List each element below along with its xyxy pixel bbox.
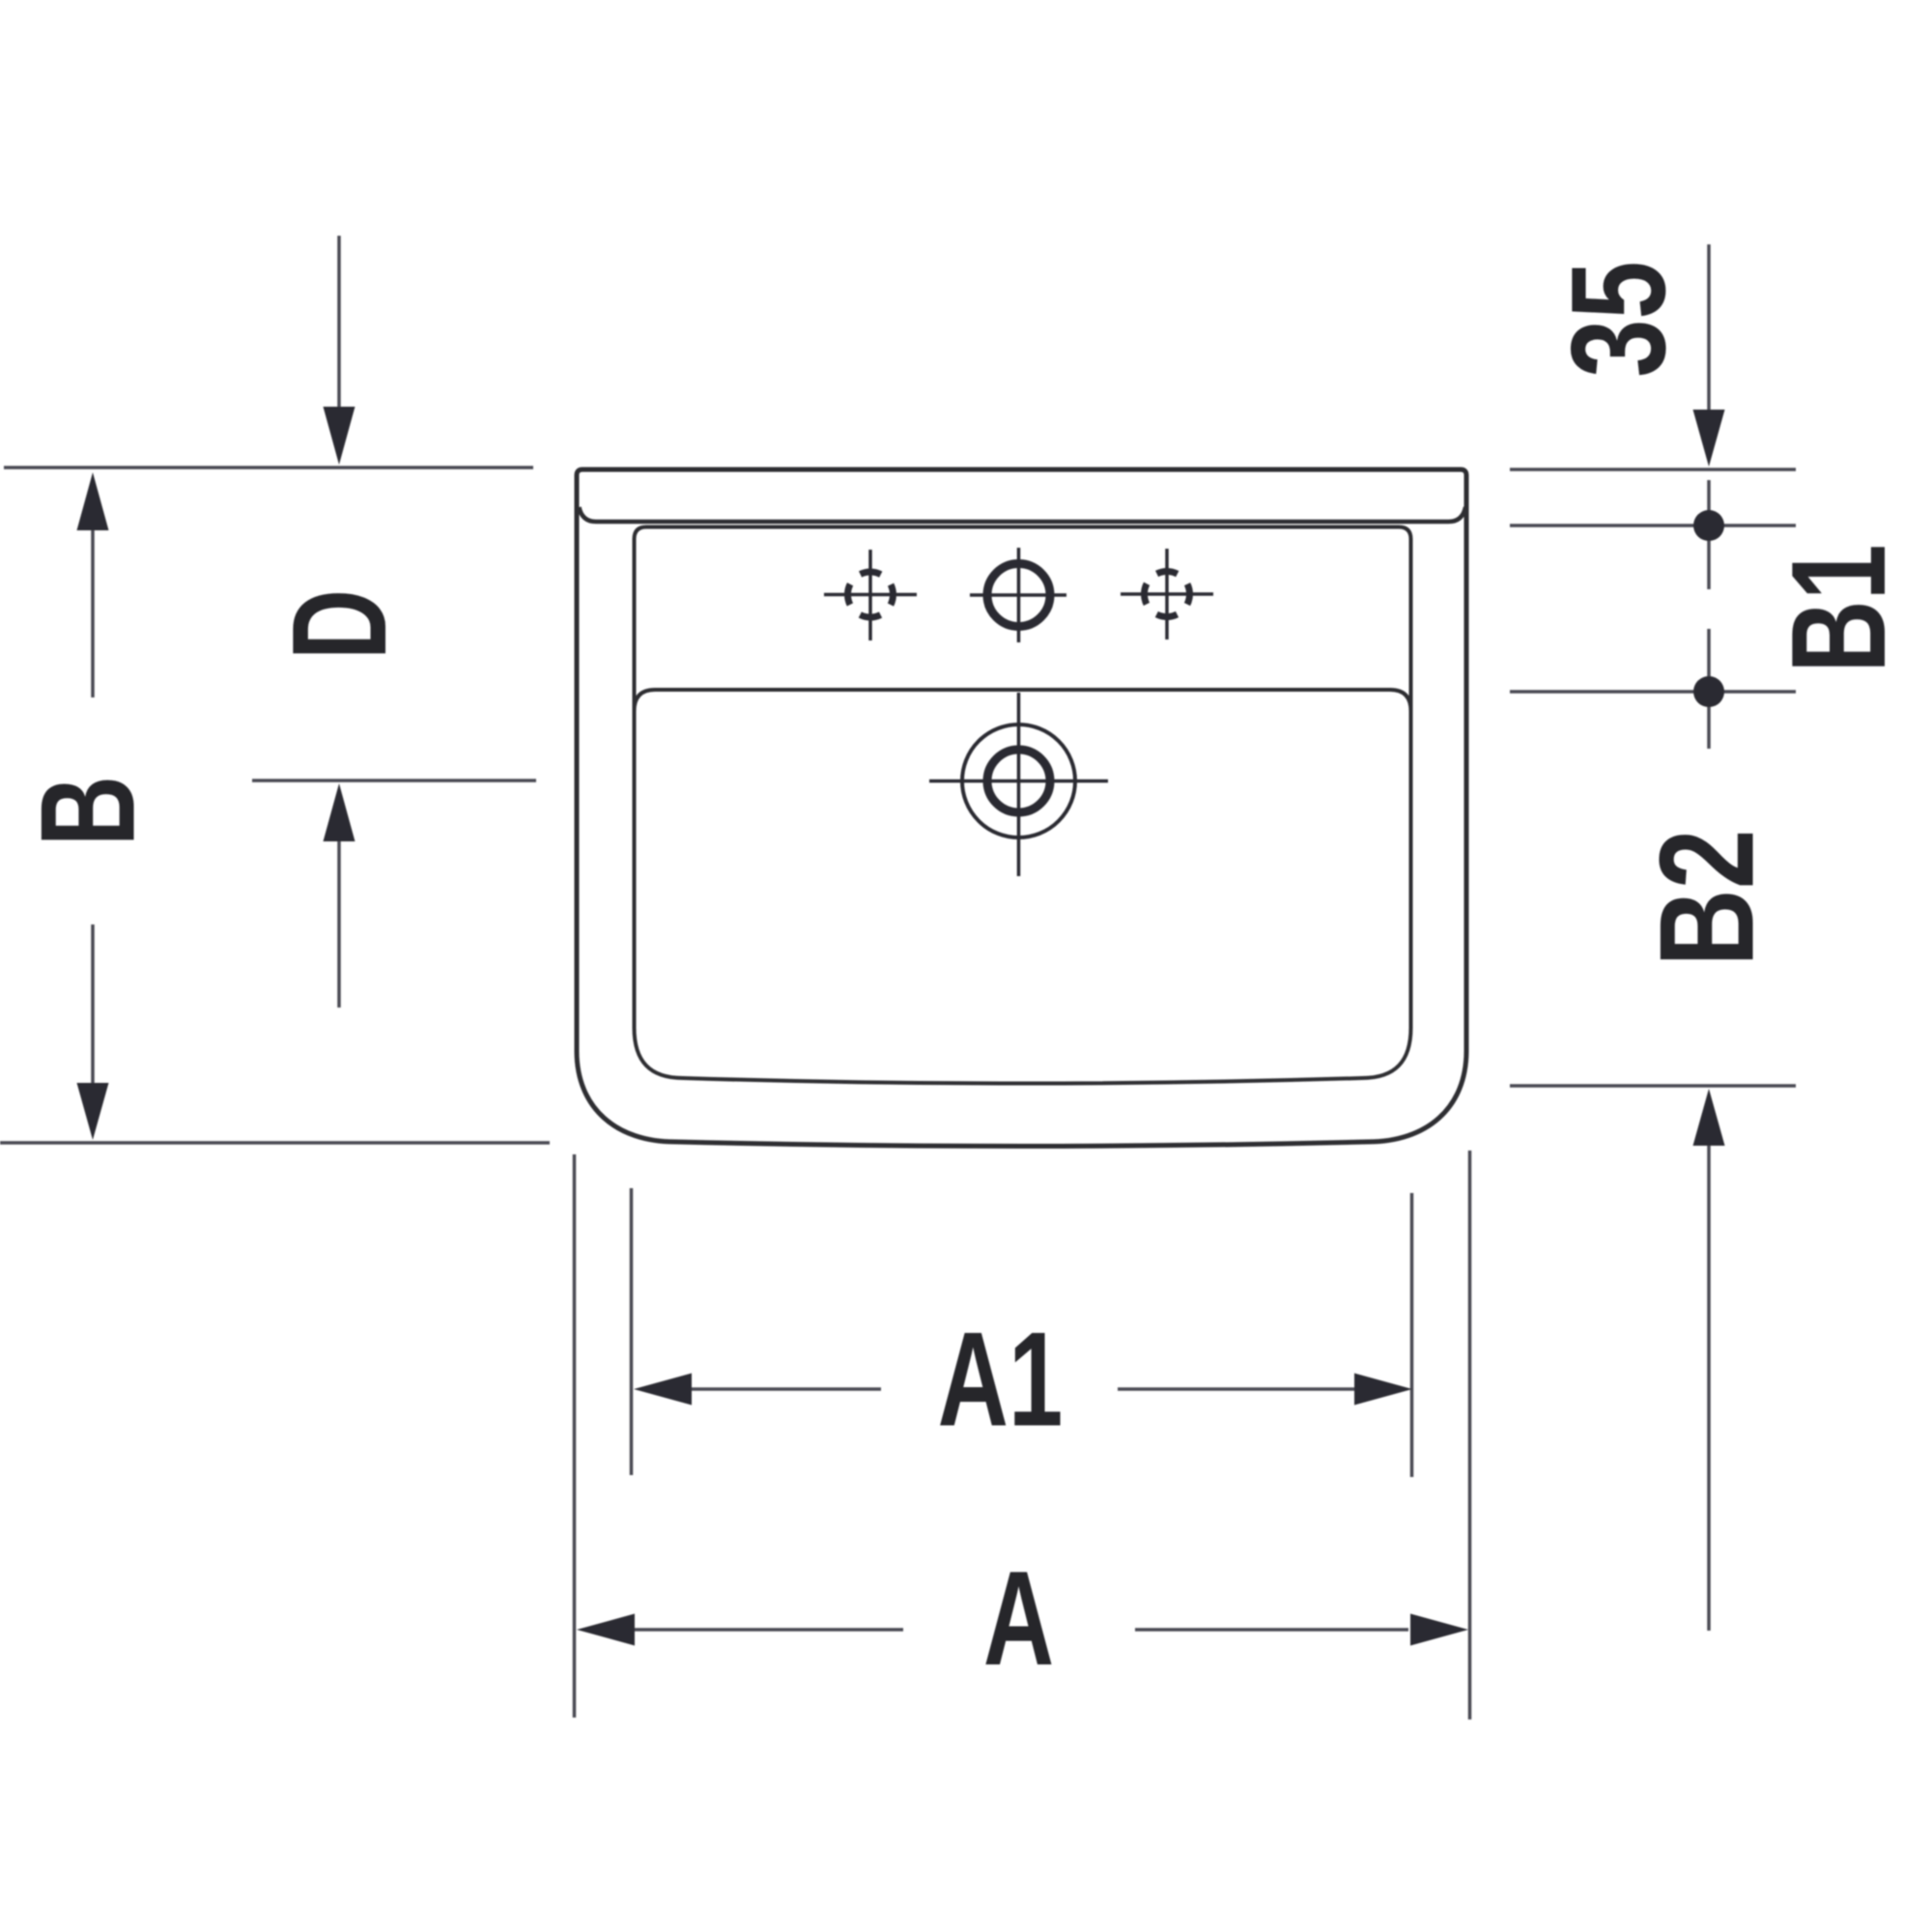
svg-text:A1: A1 bbox=[938, 1304, 1064, 1454]
svg-text:D: D bbox=[264, 589, 413, 660]
svg-text:B1: B1 bbox=[1765, 544, 1915, 672]
svg-text:B2: B2 bbox=[1632, 829, 1782, 966]
svg-text:B: B bbox=[13, 776, 162, 846]
svg-text:35: 35 bbox=[1544, 261, 1693, 378]
svg-text:A: A bbox=[983, 1543, 1054, 1692]
